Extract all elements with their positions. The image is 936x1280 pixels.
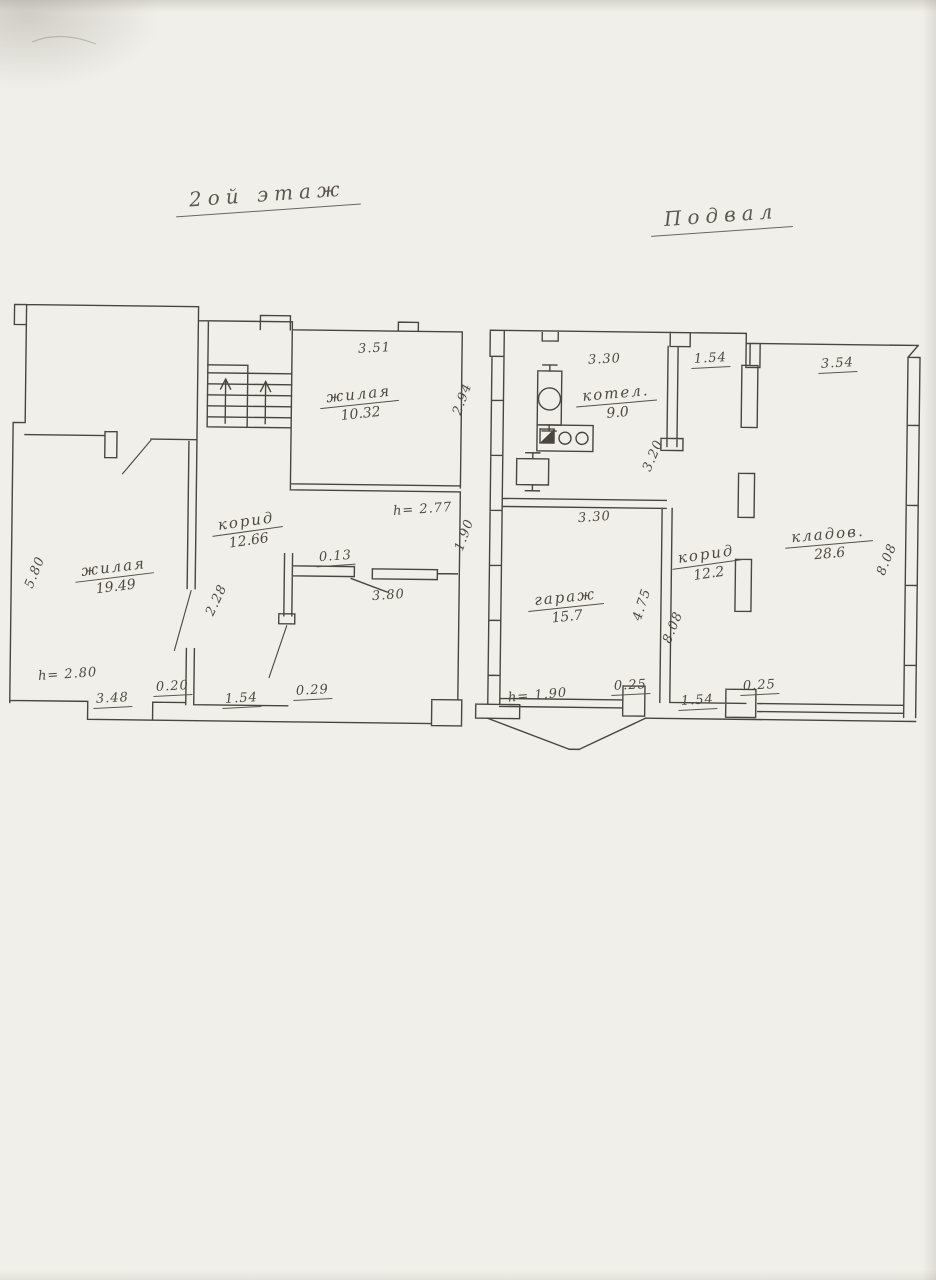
dim-opening: 3.80	[372, 587, 406, 604]
dim-bottom-corridor-width-basement: 1.54	[678, 692, 718, 711]
dim-bottom-left-wall: 0.25	[611, 677, 651, 696]
dim-bottom-right-wall: 0.29	[293, 682, 333, 701]
water-tank-icon	[516, 453, 548, 491]
paper-background: 2ой этаж Подвал жилая 10.32 жилая 19.49 …	[0, 0, 936, 1280]
dim-garage-top: 3.30	[578, 509, 612, 526]
basement-entrance-ramp	[487, 716, 645, 750]
floor-plan-drawing	[0, 0, 936, 1280]
room-label-boiler: котел. 9.0	[575, 381, 659, 425]
dim-bottom-living-width: 3.48	[93, 690, 133, 709]
stove-icon	[537, 425, 593, 452]
second-floor-staircase	[207, 365, 292, 428]
dim-bottom-wall: 0.20	[153, 678, 193, 697]
dim-top-gap: 1.54	[691, 350, 731, 369]
dim-boiler-top: 3.30	[588, 351, 622, 368]
scanned-floor-plan-page: { "page": { "background": "#f1efe9", "in…	[0, 0, 936, 1280]
dim-bottom-corridor-width: 1.54	[222, 690, 262, 709]
dim-storage-top: 3.54	[818, 355, 858, 374]
dim-bottom-right-wall-basement: 0.25	[740, 677, 780, 696]
dim-living-top-width: 3.51	[358, 340, 392, 357]
room-label-garage: гараж 15.7	[526, 584, 606, 629]
dim-sill: 0.13	[315, 548, 355, 568]
boiler-icon	[537, 365, 562, 431]
faint-pencil-mark	[32, 36, 96, 44]
room-label-storage: кладов. 28.6	[784, 521, 874, 565]
